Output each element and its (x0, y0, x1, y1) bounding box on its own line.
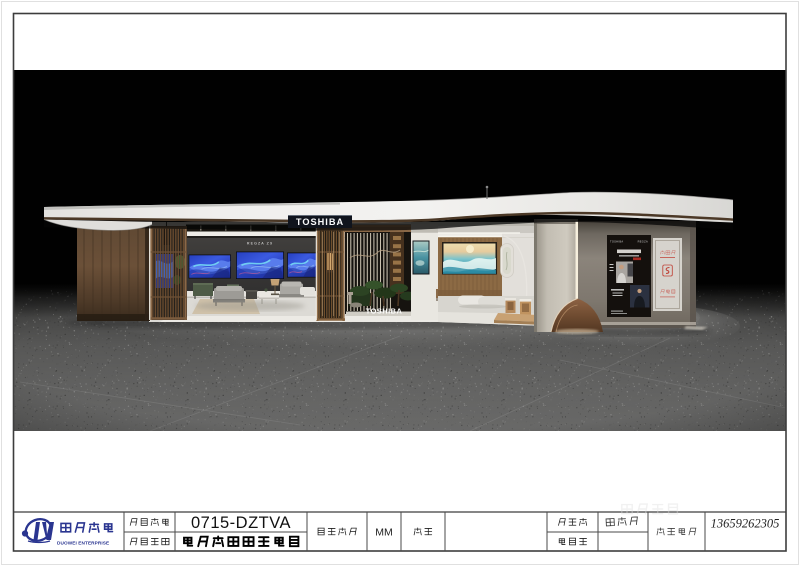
svg-text:TOSHIBA: TOSHIBA (610, 240, 623, 244)
svg-text:TOSHIBA: TOSHIBA (296, 217, 344, 227)
svg-text:MM: MM (375, 527, 393, 539)
svg-text:0715-DZTVA: 0715-DZTVA (191, 514, 291, 532)
svg-text:DUOWEI ENTERPRISE: DUOWEI ENTERPRISE (57, 541, 109, 546)
svg-text:REGZA Z9: REGZA Z9 (247, 242, 273, 246)
svg-text:13659262305: 13659262305 (711, 517, 780, 531)
svg-text:TOSHIBA: TOSHIBA (366, 307, 403, 316)
svg-text:REGZA: REGZA (638, 240, 648, 244)
